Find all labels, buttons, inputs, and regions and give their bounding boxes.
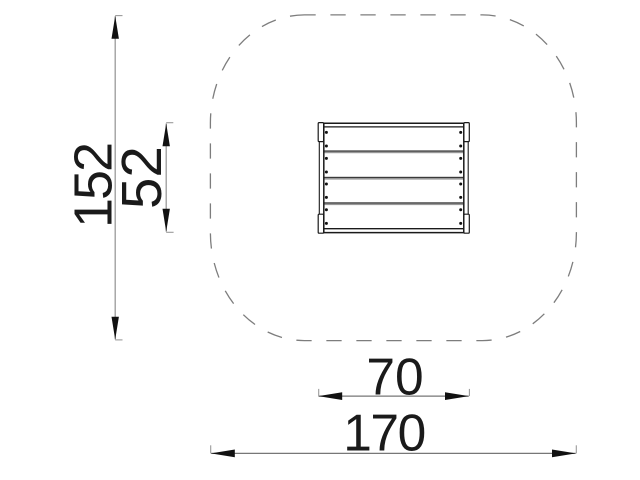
svg-text:170: 170 [343,404,424,462]
svg-text:70: 70 [366,348,423,406]
svg-text:52: 52 [110,146,173,209]
